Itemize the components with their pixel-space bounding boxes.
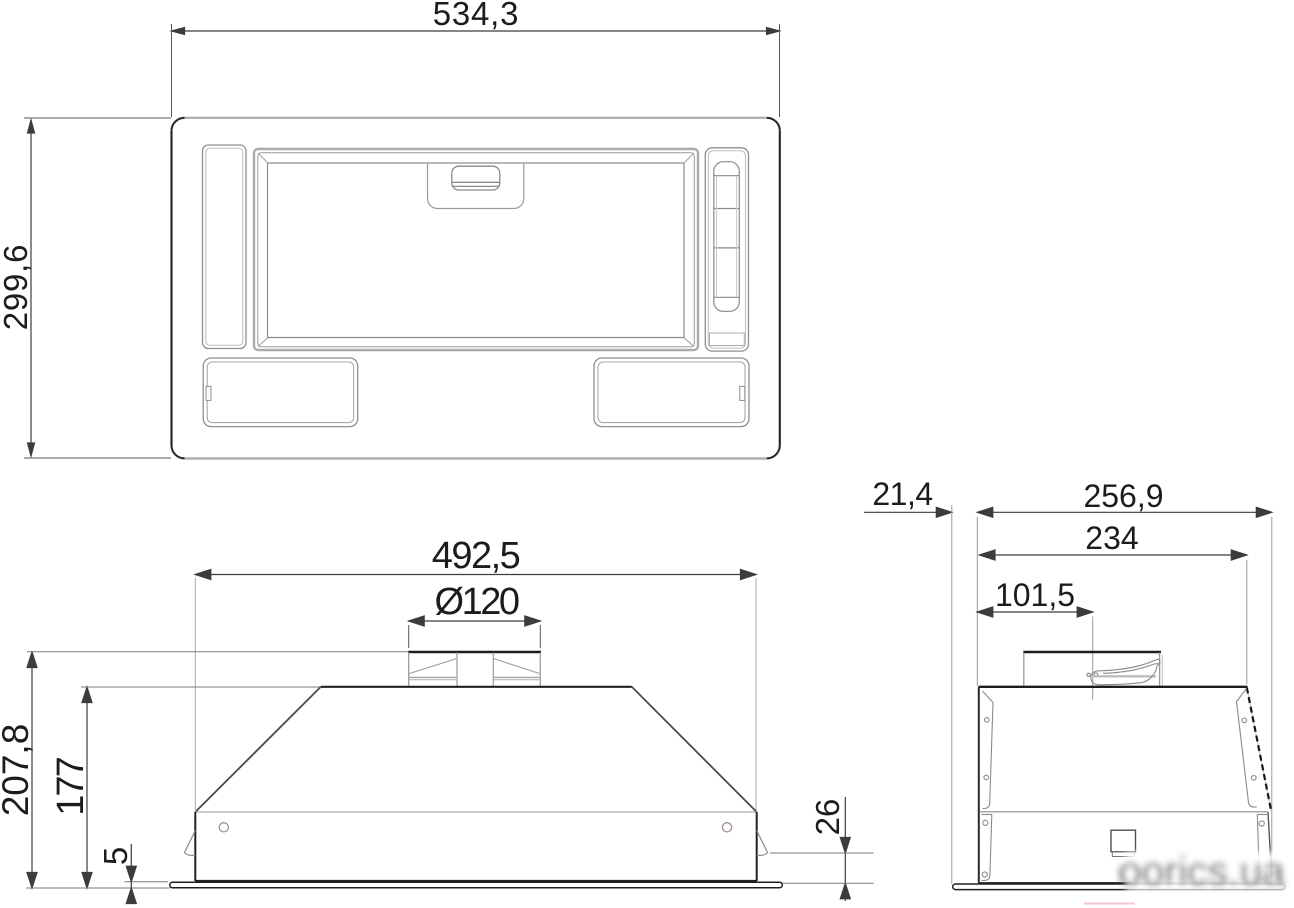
- svg-text:Ø120: Ø120: [435, 581, 519, 623]
- svg-text:oorics.ua: oorics.ua: [1119, 848, 1286, 894]
- svg-text:534,3: 534,3: [433, 0, 520, 32]
- svg-text:256,9: 256,9: [1083, 478, 1163, 514]
- svg-text:299,6: 299,6: [0, 244, 34, 331]
- svg-text:26: 26: [809, 799, 846, 836]
- svg-text:492,5: 492,5: [432, 535, 520, 577]
- svg-text:234: 234: [1085, 520, 1138, 556]
- svg-text:177: 177: [50, 757, 92, 815]
- svg-text:21,4: 21,4: [872, 476, 932, 512]
- svg-text:207,8: 207,8: [0, 724, 36, 817]
- svg-text:101,5: 101,5: [995, 577, 1075, 613]
- svg-text:5: 5: [97, 847, 134, 865]
